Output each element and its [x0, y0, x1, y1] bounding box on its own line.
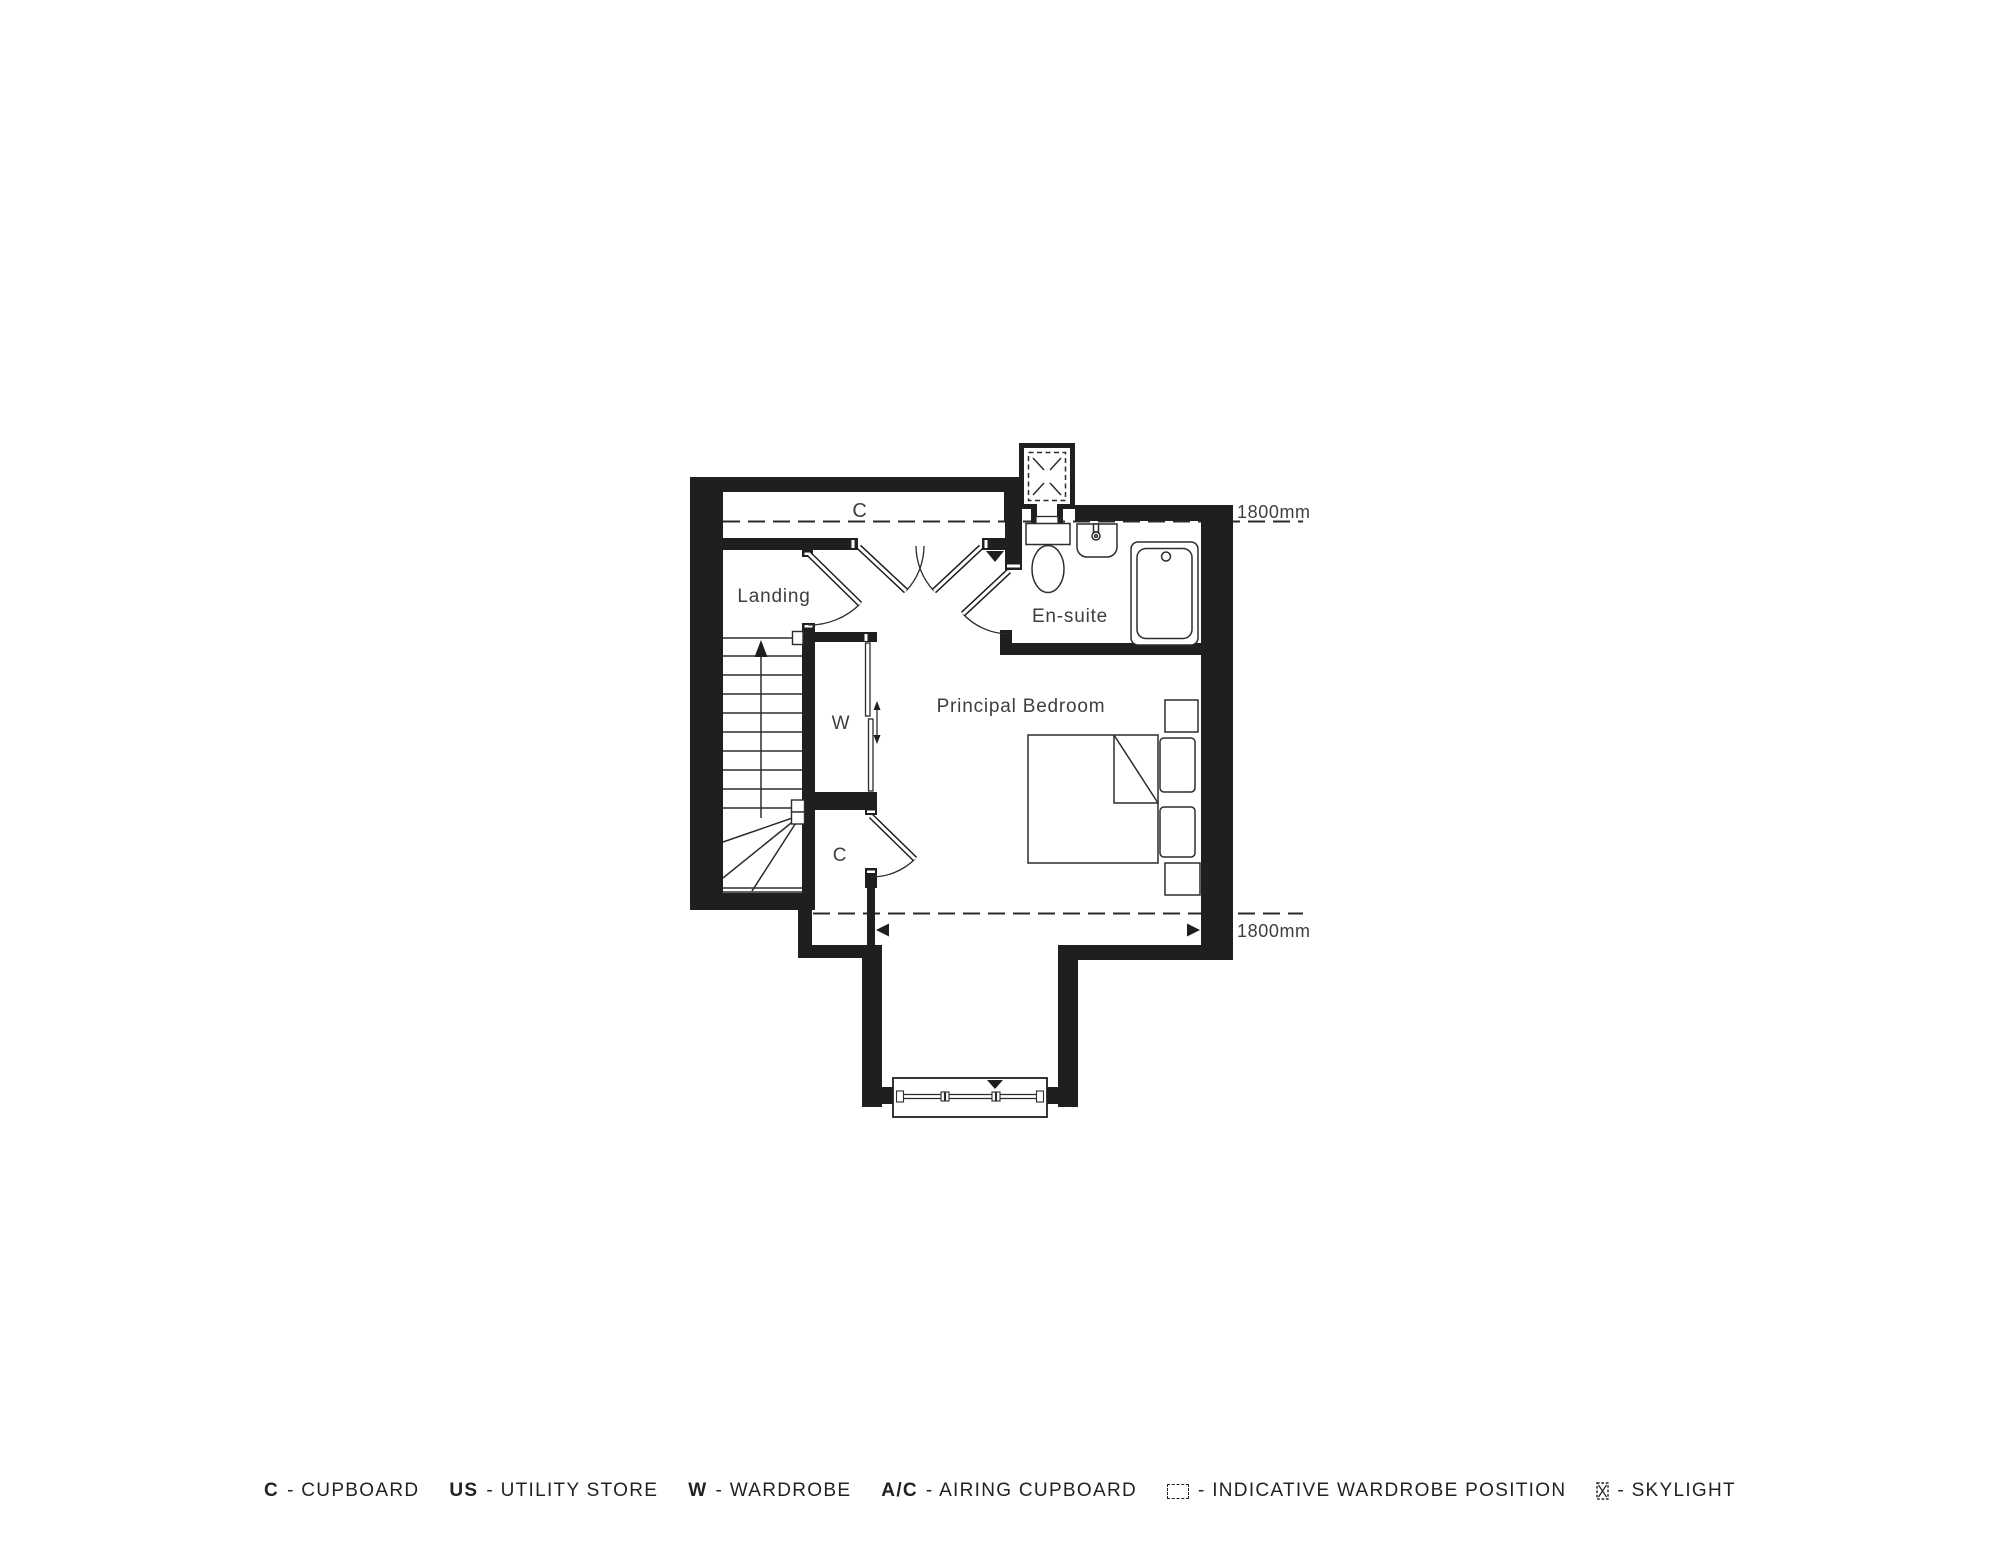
landing-door	[809, 554, 861, 625]
skylight-icon	[1596, 1482, 1609, 1500]
dimension-arrow-left-icon	[876, 924, 889, 937]
wall-ensuite-top	[1075, 505, 1205, 521]
legend-label: - CUPBOARD	[287, 1480, 419, 1502]
pillow	[1160, 807, 1195, 857]
legend-label: - SKYLIGHT	[1617, 1480, 1736, 1502]
dimension-label-top: 1800mm	[1237, 502, 1311, 522]
legend-item-airing-cupboard: A/C - AIRING CUPBOARD	[881, 1480, 1137, 1502]
room-label-cupboard-top: C	[852, 500, 867, 522]
bed	[1028, 700, 1200, 895]
room-label-bedroom: Principal Bedroom	[937, 696, 1106, 717]
wall-stairs-divider	[802, 623, 815, 910]
bedside-table	[1165, 863, 1200, 895]
legend-item-wardrobe-position: - INDICATIVE WARDROBE POSITION	[1167, 1480, 1566, 1502]
legend-abbr: US	[449, 1480, 478, 1502]
stairs-up-arrow-icon	[755, 640, 768, 818]
legend-item-skylight: - SKYLIGHT	[1596, 1480, 1736, 1502]
room-label-ensuite: En-suite	[1032, 606, 1108, 627]
legend-item-cupboard: C - CUPBOARD	[264, 1480, 419, 1502]
wall-bay-right	[1058, 945, 1078, 1107]
wall-right	[1201, 505, 1233, 960]
window	[882, 1078, 1058, 1117]
room-label-landing: Landing	[737, 586, 810, 607]
room-label-cupboard-bottom: C	[833, 845, 848, 866]
sink	[1077, 524, 1117, 557]
room-label-wardrobe: W	[832, 713, 851, 734]
pillow	[1160, 738, 1195, 792]
wall-bay-left	[862, 945, 882, 1107]
dimension-label-bottom: 1800mm	[1237, 921, 1311, 941]
legend-label: - INDICATIVE WARDROBE POSITION	[1198, 1480, 1566, 1502]
legend-item-wardrobe: W - WARDROBE	[688, 1480, 851, 1502]
toilet	[1026, 524, 1070, 593]
wardrobe-position-icon	[1167, 1484, 1189, 1499]
bedside-table	[1165, 700, 1198, 732]
legend-abbr: W	[688, 1480, 707, 1502]
legend: C - CUPBOARD US - UTILITY STORE W - WARD…	[0, 1480, 2000, 1502]
wall-cupboard-strip-right	[982, 538, 1022, 550]
wall-stairs-bottom	[690, 893, 812, 910]
wardrobe-sliding-door	[866, 643, 881, 791]
double-doors	[859, 546, 981, 591]
legend-label: - WARDROBE	[716, 1480, 852, 1502]
bed-body	[1028, 735, 1158, 863]
legend-abbr: C	[264, 1480, 279, 1502]
legend-abbr: A/C	[881, 1480, 918, 1502]
wall-cupboard-door-post-top	[865, 802, 877, 815]
wall-cupboard-strip-left	[723, 538, 858, 550]
slide-arrow-icon	[874, 701, 881, 744]
cupboard-door	[871, 816, 915, 877]
wall-left	[690, 477, 723, 910]
ensuite-door	[963, 571, 1009, 634]
entry-marker-icon	[986, 551, 1004, 562]
floor-plan-canvas: C Landing En-suite Principal Bedroom W C…	[0, 0, 2000, 1561]
staircase	[723, 638, 802, 892]
dimension-arrow-right-icon	[1187, 924, 1200, 937]
legend-label: - UTILITY STORE	[486, 1480, 658, 1502]
legend-label: - AIRING CUPBOARD	[926, 1480, 1137, 1502]
skylight	[1019, 443, 1075, 525]
wall-thin-bar	[867, 874, 875, 945]
bathtub	[1131, 542, 1198, 645]
wall-top	[690, 477, 1019, 492]
legend-item-utility-store: US - UTILITY STORE	[449, 1480, 658, 1502]
